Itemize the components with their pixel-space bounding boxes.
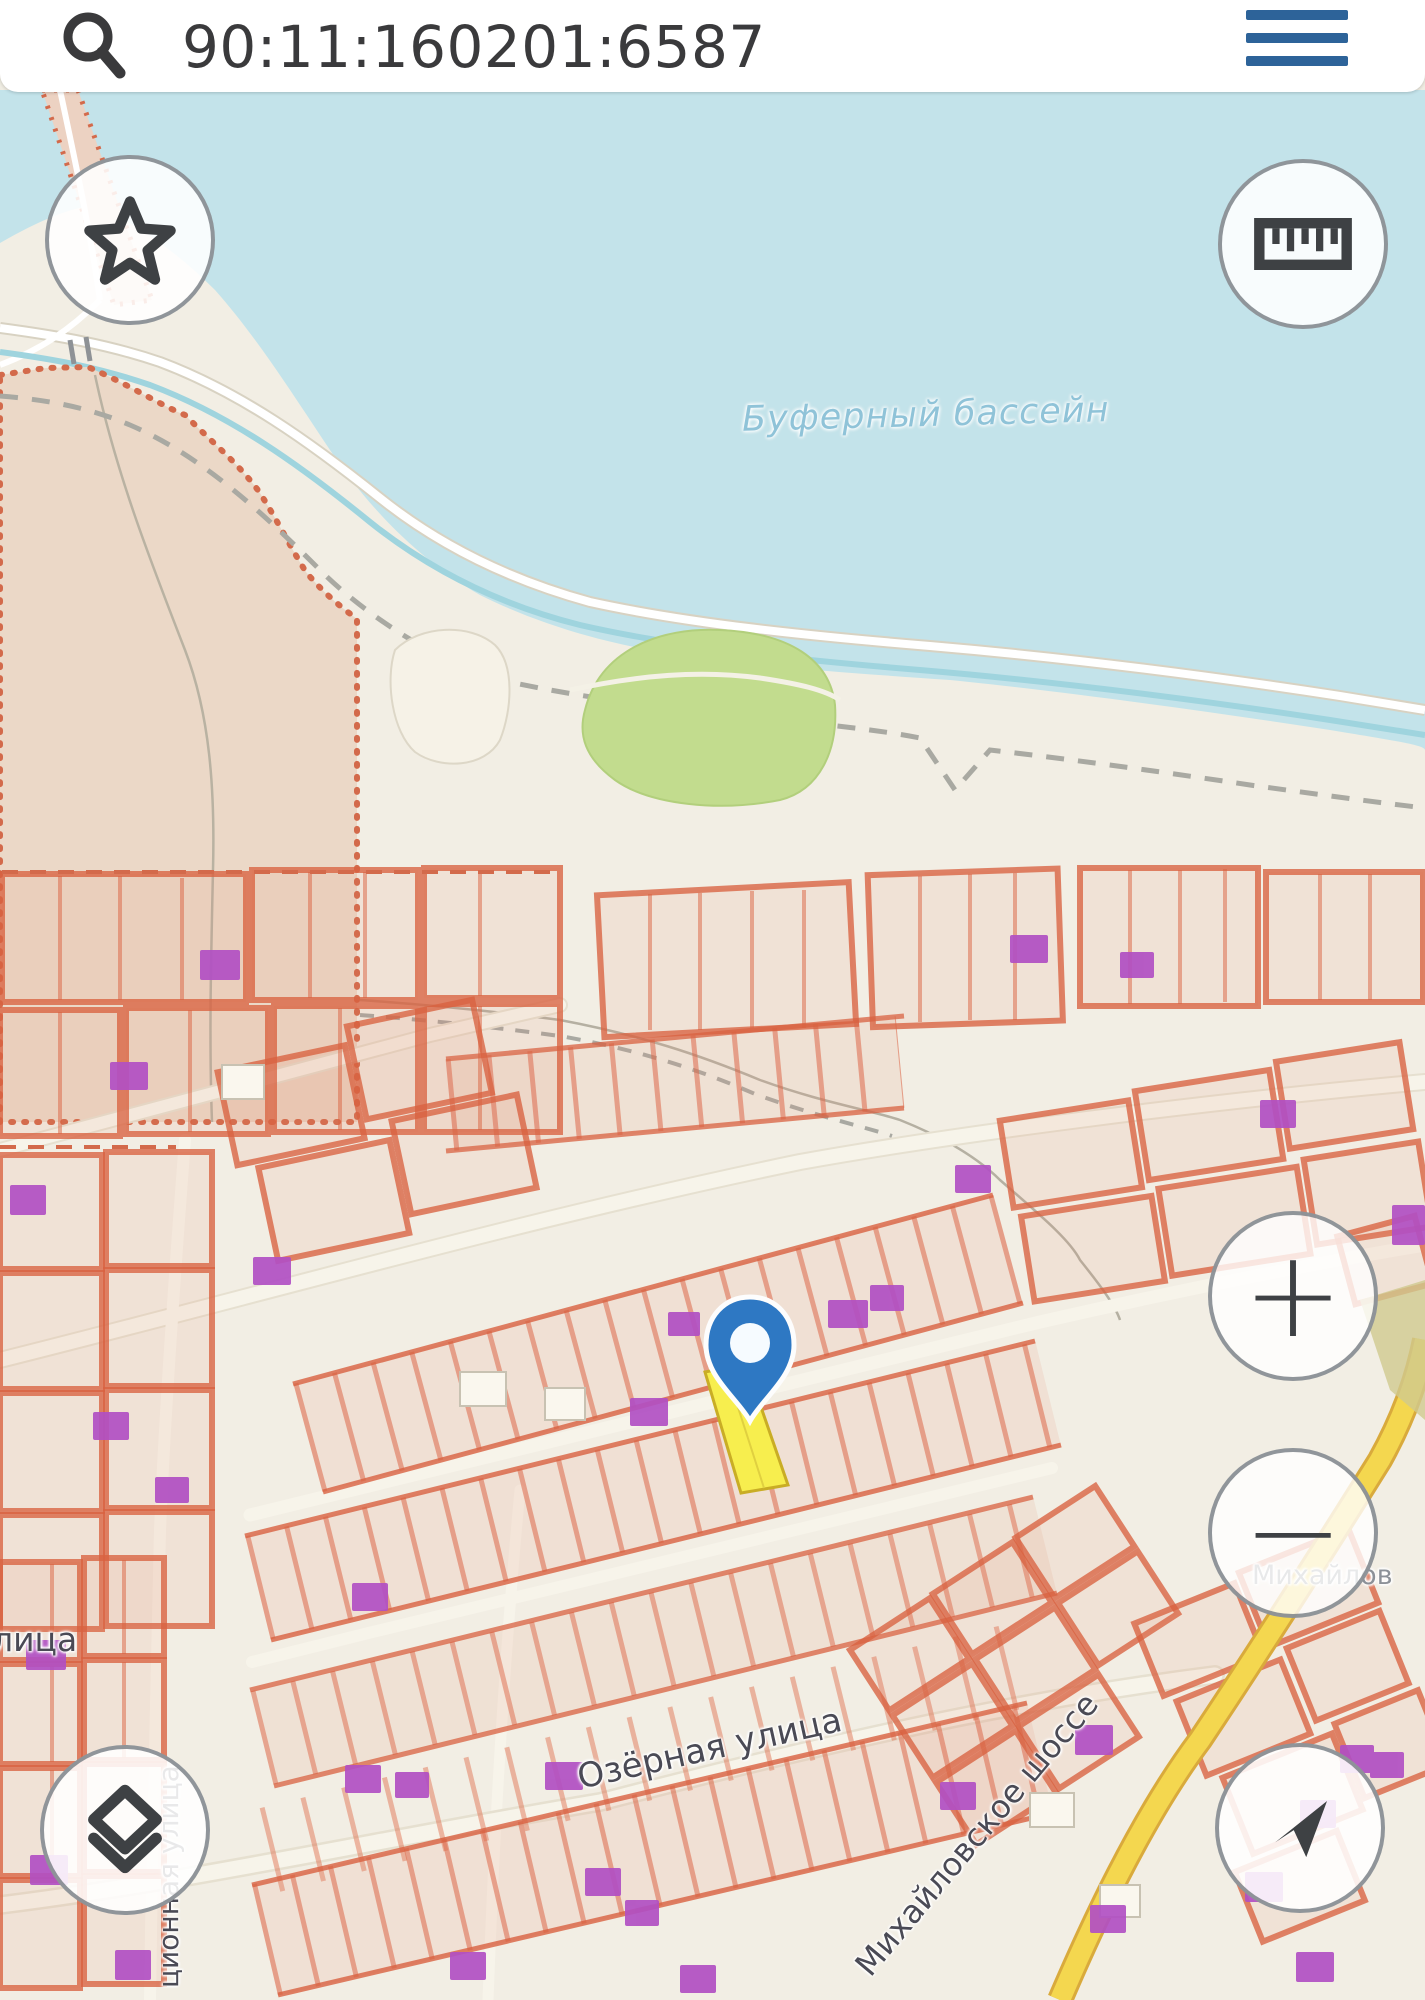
plus-icon: + (1243, 1216, 1344, 1376)
search-bar: 90:11:160201:6587 (0, 0, 1425, 92)
compass-arrow-icon (1248, 1776, 1352, 1880)
minus-icon: − (1243, 1453, 1344, 1613)
menu-button[interactable] (1246, 10, 1348, 79)
street-label-partial: лица (0, 1620, 77, 1659)
star-icon (78, 188, 182, 292)
measure-button[interactable] (1218, 159, 1388, 329)
zoom-in-button[interactable]: + (1208, 1211, 1378, 1381)
locate-button[interactable] (1215, 1743, 1385, 1913)
map-canvas[interactable] (0, 90, 1425, 2000)
location-pin[interactable] (700, 1293, 800, 1428)
layers-icon (73, 1778, 177, 1882)
park-area (583, 630, 836, 806)
ruler-icon (1251, 192, 1355, 296)
search-icon (58, 7, 136, 87)
hamburger-icon (1246, 10, 1348, 20)
zoom-out-button[interactable]: − (1208, 1448, 1378, 1618)
favorites-button[interactable] (45, 155, 215, 325)
layers-button[interactable] (40, 1745, 210, 1915)
search-input[interactable]: 90:11:160201:6587 (182, 0, 766, 92)
app-screen: Буферный бассейн Озёрная улица Михайловс… (0, 0, 1425, 2000)
